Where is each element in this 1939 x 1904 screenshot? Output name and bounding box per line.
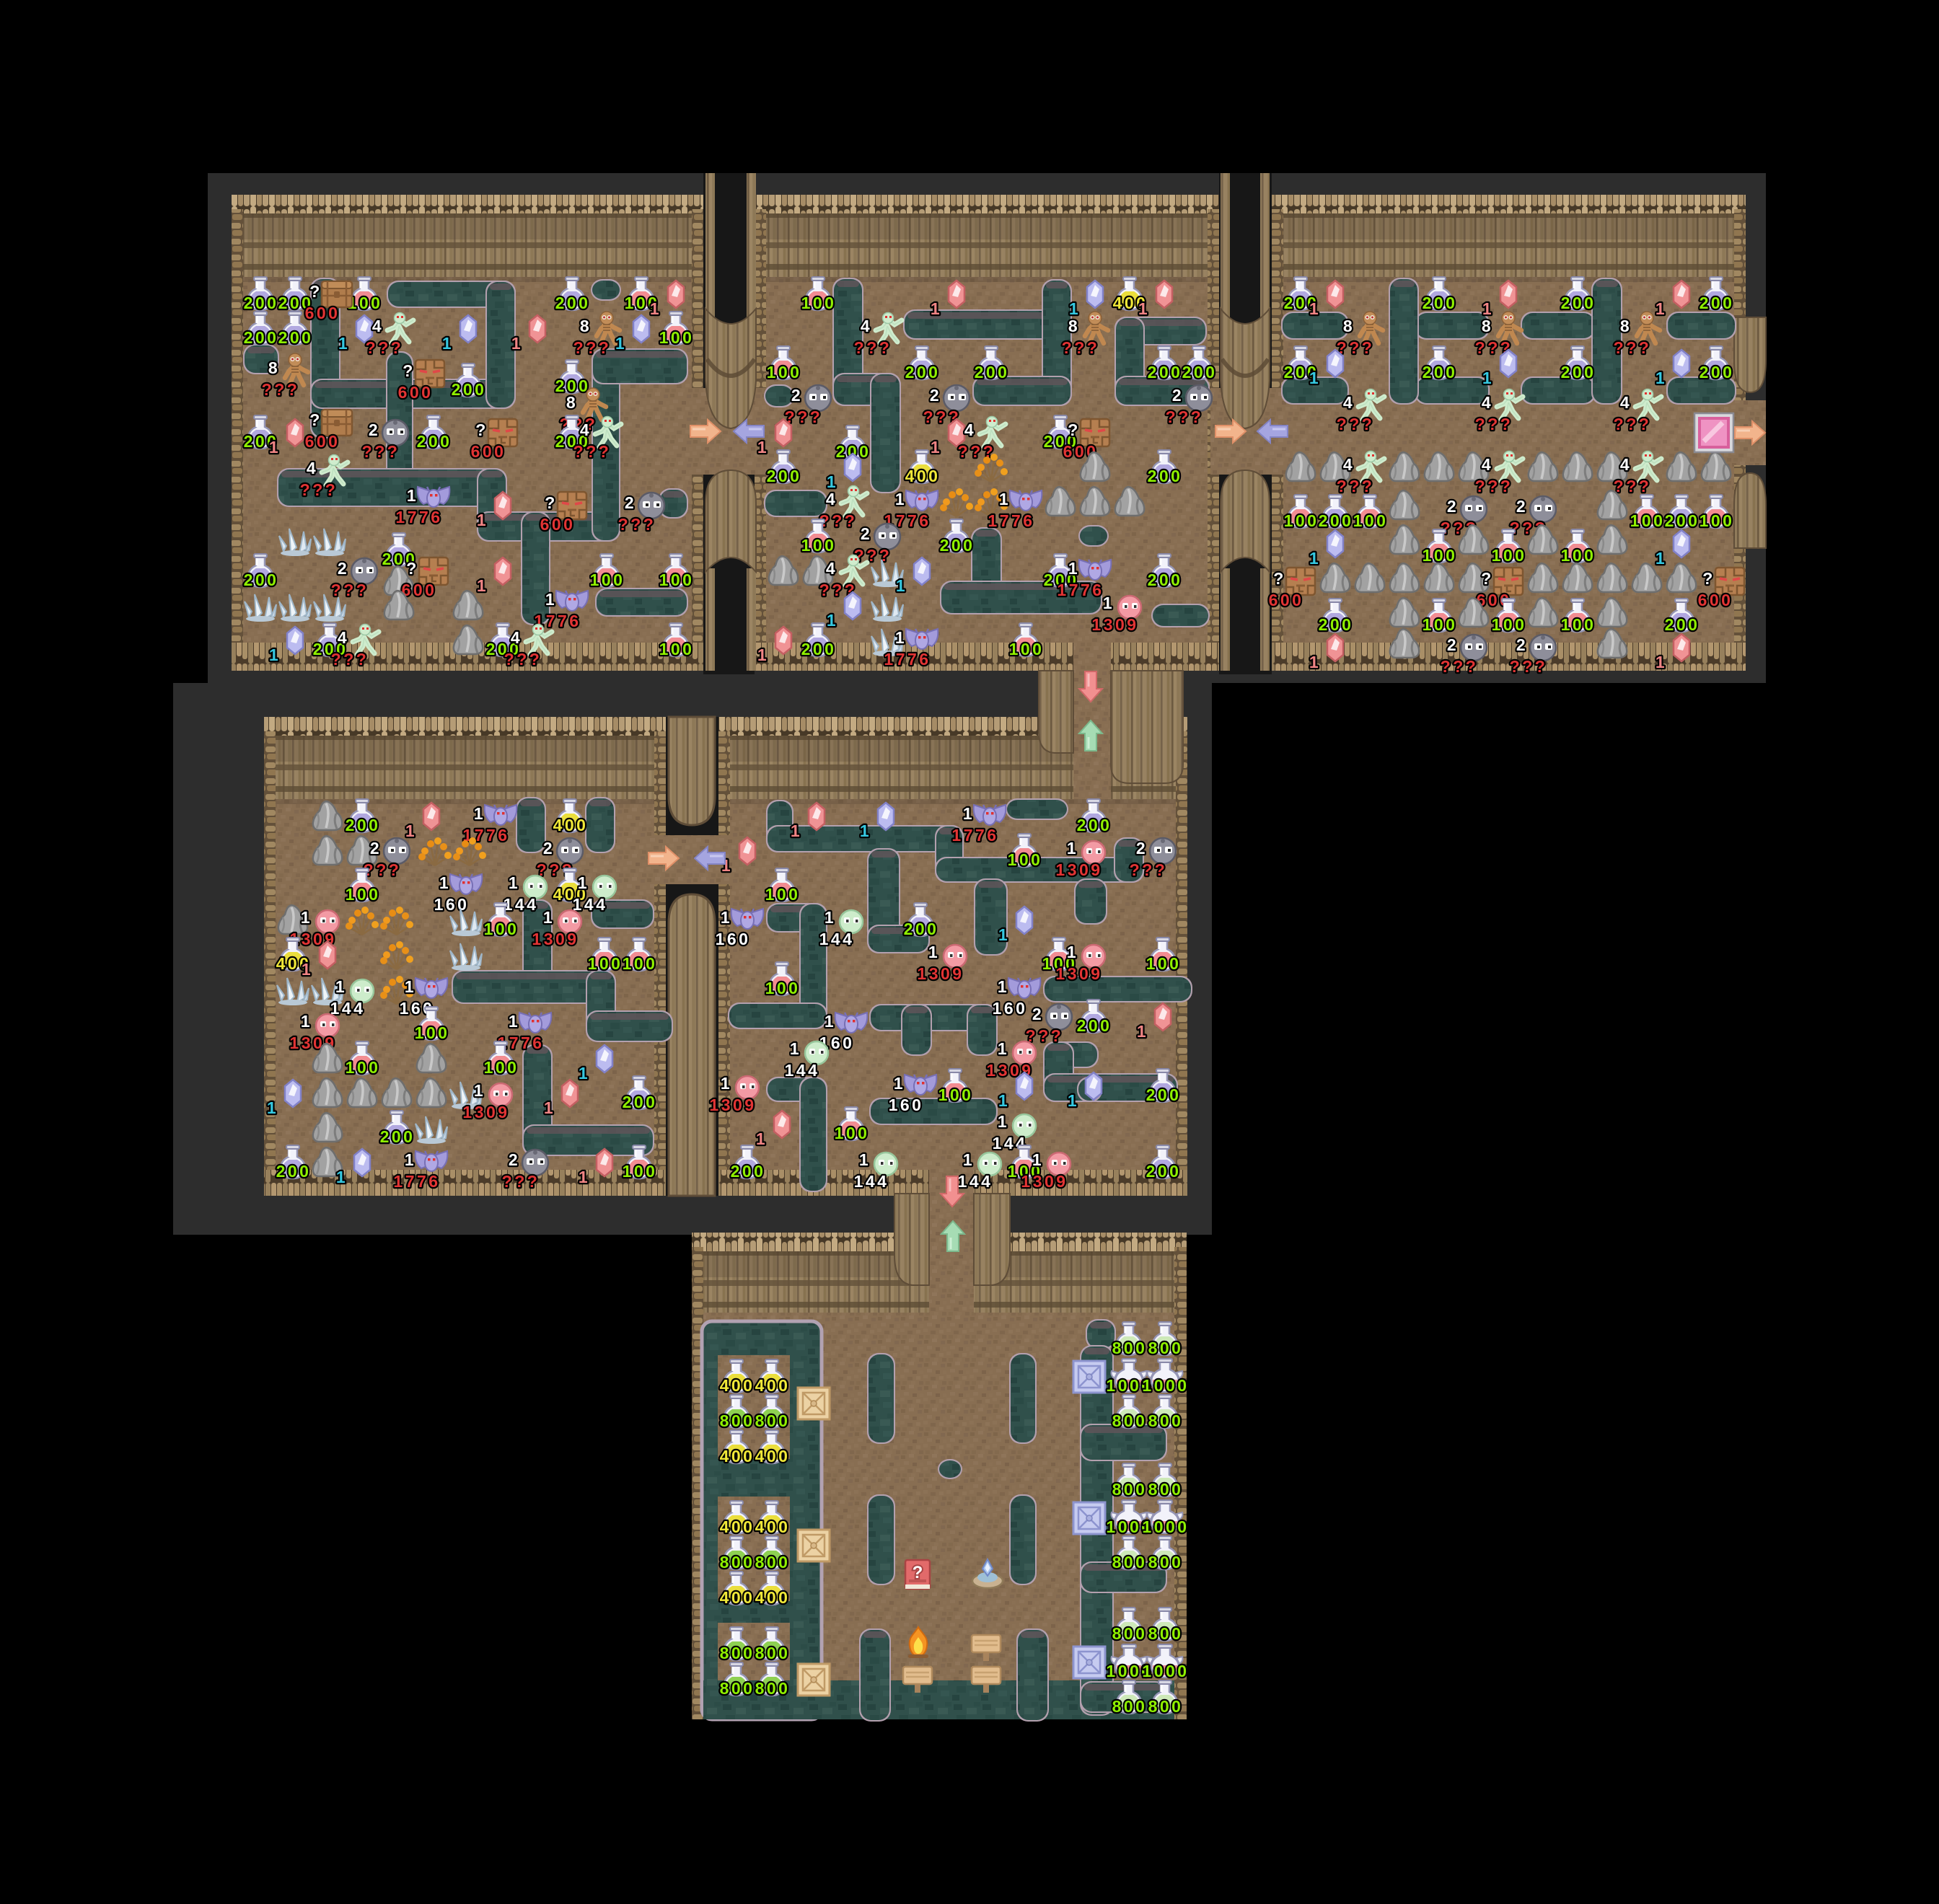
svg-text:100: 100 [588, 954, 623, 973]
svg-text:1: 1 [860, 821, 871, 840]
svg-text:4: 4 [580, 420, 592, 439]
svg-text:200: 200 [1665, 511, 1700, 530]
svg-text:100: 100 [659, 328, 695, 347]
svg-text:200: 200 [1561, 363, 1596, 382]
svg-text:200: 200 [905, 363, 941, 382]
svg-text:1: 1 [439, 873, 451, 892]
svg-text:1: 1 [931, 438, 942, 457]
svg-text:???: ??? [1337, 338, 1375, 357]
svg-text:200: 200 [1423, 294, 1458, 312]
svg-text:???: ??? [1166, 407, 1204, 426]
svg-text:4: 4 [307, 459, 318, 477]
svg-text:???: ??? [1475, 477, 1513, 495]
svg-text:1: 1 [721, 908, 732, 927]
svg-text:???: ??? [1441, 657, 1479, 676]
svg-text:1: 1 [1067, 943, 1078, 961]
svg-text:???: ??? [1614, 338, 1652, 357]
svg-text:200: 200 [1148, 570, 1183, 589]
svg-text:800: 800 [720, 1679, 755, 1698]
svg-text:2: 2 [509, 1150, 520, 1169]
svg-text:4: 4 [372, 317, 384, 335]
svg-text:600: 600 [305, 304, 340, 322]
svg-text:100: 100 [415, 1023, 450, 1042]
svg-text:1776: 1776 [884, 650, 931, 669]
svg-text:600: 600 [540, 515, 576, 534]
svg-text:800: 800 [1148, 1411, 1184, 1430]
svg-text:1776: 1776 [988, 511, 1034, 530]
svg-text:100: 100 [1284, 511, 1319, 530]
svg-text:?: ? [309, 282, 322, 301]
svg-text:100: 100 [590, 570, 625, 589]
svg-text:1: 1 [931, 299, 942, 318]
svg-text:800: 800 [1148, 1553, 1184, 1572]
svg-text:4: 4 [1482, 393, 1493, 412]
svg-text:1: 1 [442, 334, 454, 353]
svg-text:???: ??? [785, 407, 823, 426]
svg-text:1309: 1309 [1055, 860, 1102, 879]
svg-text:1: 1 [545, 590, 557, 609]
svg-text:???: ??? [573, 338, 612, 357]
svg-text:???: ??? [1614, 415, 1652, 433]
svg-text:200: 200 [1319, 511, 1354, 530]
svg-text:200: 200 [1148, 467, 1183, 485]
svg-text:1: 1 [1656, 653, 1667, 671]
svg-text:???: ??? [262, 380, 300, 399]
svg-text:2: 2 [370, 839, 382, 858]
svg-text:2: 2 [543, 839, 555, 858]
svg-text:8: 8 [580, 317, 592, 335]
svg-text:???: ??? [300, 480, 338, 499]
svg-text:400: 400 [720, 1447, 755, 1466]
svg-text:1776: 1776 [393, 1172, 440, 1191]
svg-text:1: 1 [1067, 839, 1078, 858]
svg-text:1: 1 [757, 438, 769, 457]
svg-text:?: ? [1068, 420, 1081, 439]
svg-text:2: 2 [861, 524, 872, 543]
svg-text:200: 200 [244, 570, 279, 589]
svg-text:1: 1 [721, 1074, 732, 1093]
svg-text:800: 800 [1148, 1480, 1184, 1499]
svg-text:1: 1 [579, 1064, 590, 1083]
svg-text:1309: 1309 [917, 964, 964, 983]
svg-text:1: 1 [1032, 1150, 1044, 1169]
svg-text:1: 1 [1656, 549, 1667, 568]
svg-text:800: 800 [1148, 1339, 1184, 1357]
svg-text:1: 1 [650, 299, 661, 318]
svg-text:???: ??? [504, 650, 542, 669]
svg-text:1309: 1309 [462, 1103, 509, 1121]
svg-text:1: 1 [269, 645, 281, 664]
svg-text:800: 800 [755, 1644, 791, 1662]
svg-text:200: 200 [346, 816, 381, 834]
svg-text:200: 200 [1319, 615, 1354, 634]
svg-text:1: 1 [859, 1150, 871, 1169]
svg-text:100: 100 [1423, 546, 1458, 565]
svg-text:1309: 1309 [709, 1096, 756, 1114]
svg-text:???: ??? [366, 338, 404, 357]
svg-text:1: 1 [405, 1150, 416, 1169]
svg-text:8: 8 [1343, 317, 1355, 335]
svg-text:1000: 1000 [1142, 1376, 1189, 1395]
svg-text:144: 144 [819, 930, 855, 948]
svg-text:???: ??? [854, 546, 892, 565]
svg-text:2: 2 [791, 386, 803, 405]
svg-text:144: 144 [330, 999, 366, 1018]
svg-text:1: 1 [791, 821, 802, 840]
svg-text:1: 1 [1482, 369, 1494, 387]
svg-text:1: 1 [1482, 299, 1494, 318]
svg-text:200: 200 [1077, 1016, 1112, 1035]
svg-text:?: ? [1273, 569, 1286, 588]
svg-text:8: 8 [1068, 317, 1080, 335]
svg-text:4: 4 [1343, 455, 1355, 474]
svg-text:2: 2 [1136, 839, 1148, 858]
svg-text:100: 100 [623, 954, 658, 973]
svg-text:800: 800 [1112, 1480, 1148, 1499]
svg-text:1: 1 [615, 334, 627, 353]
svg-text:4: 4 [1620, 393, 1632, 412]
svg-text:1: 1 [756, 1129, 768, 1148]
svg-text:200: 200 [1182, 363, 1218, 382]
svg-text:100: 100 [1561, 615, 1596, 634]
svg-text:1: 1 [827, 472, 838, 491]
svg-text:600: 600 [305, 432, 340, 451]
svg-text:200: 200 [1665, 615, 1700, 634]
svg-text:1309: 1309 [1021, 1172, 1068, 1191]
svg-text:???: ??? [1062, 338, 1100, 357]
svg-text:1: 1 [1068, 559, 1080, 578]
svg-text:200: 200 [380, 1127, 415, 1146]
svg-text:4: 4 [1343, 393, 1355, 412]
svg-text:1: 1 [474, 1081, 485, 1100]
svg-text:1: 1 [895, 490, 907, 508]
svg-text:1: 1 [998, 925, 1010, 944]
svg-text:2: 2 [1516, 497, 1528, 516]
svg-text:100: 100 [484, 920, 519, 938]
svg-text:1: 1 [301, 908, 312, 927]
svg-text:2: 2 [1172, 386, 1184, 405]
svg-text:1: 1 [578, 873, 589, 892]
svg-text:???: ??? [618, 515, 656, 534]
svg-text:4: 4 [511, 628, 522, 647]
svg-text:200: 200 [731, 1162, 766, 1181]
svg-text:100: 100 [1492, 546, 1527, 565]
svg-text:8: 8 [1620, 317, 1632, 335]
svg-text:200: 200 [767, 467, 802, 485]
svg-text:?: ? [309, 410, 322, 429]
svg-text:800: 800 [1112, 1553, 1148, 1572]
svg-text:100: 100 [835, 1124, 870, 1142]
svg-text:1: 1 [896, 576, 907, 595]
svg-text:100: 100 [765, 979, 801, 997]
svg-text:8: 8 [268, 358, 280, 377]
svg-text:1: 1 [1309, 549, 1321, 568]
svg-text:1: 1 [1103, 594, 1114, 612]
svg-text:800: 800 [1148, 1624, 1184, 1643]
svg-text:1: 1 [1309, 653, 1321, 671]
svg-text:1776: 1776 [395, 508, 442, 526]
svg-text:1: 1 [998, 977, 1009, 996]
svg-text:???: ??? [1026, 1026, 1064, 1045]
svg-text:1309: 1309 [532, 930, 579, 948]
svg-text:1: 1 [827, 611, 838, 630]
svg-text:100: 100 [1700, 511, 1735, 530]
svg-text:4: 4 [964, 420, 976, 439]
svg-text:160: 160 [889, 1096, 924, 1114]
svg-text:600: 600 [398, 383, 434, 402]
svg-text:1: 1 [999, 490, 1011, 508]
svg-text:200: 200 [801, 640, 837, 658]
svg-text:600: 600 [402, 581, 437, 599]
svg-text:200: 200 [555, 294, 591, 312]
svg-text:2: 2 [930, 386, 941, 405]
svg-text:100: 100 [1492, 615, 1527, 634]
svg-text:2: 2 [338, 559, 349, 578]
svg-text:1: 1 [544, 1098, 555, 1117]
svg-text:1: 1 [336, 1168, 348, 1186]
svg-text:???: ??? [331, 581, 369, 599]
svg-text:4: 4 [826, 559, 837, 578]
svg-text:???: ??? [331, 650, 369, 669]
svg-text:1: 1 [1656, 299, 1667, 318]
svg-text:800: 800 [1112, 1411, 1148, 1430]
svg-text:400: 400 [720, 1588, 755, 1607]
svg-text:???: ??? [362, 442, 400, 461]
svg-text:100: 100 [484, 1058, 519, 1077]
svg-text:800: 800 [755, 1411, 791, 1430]
svg-text:200: 200 [1423, 363, 1458, 382]
svg-text:800: 800 [1112, 1697, 1148, 1716]
svg-text:1: 1 [474, 804, 485, 823]
svg-text:200: 200 [417, 432, 452, 451]
svg-text:2: 2 [1447, 497, 1459, 516]
svg-text:600: 600 [471, 442, 506, 461]
svg-text:4: 4 [861, 317, 872, 335]
svg-text:400: 400 [905, 467, 941, 485]
svg-text:200: 200 [940, 536, 975, 555]
svg-text:800: 800 [720, 1411, 755, 1430]
svg-text:100: 100 [1353, 511, 1389, 530]
svg-text:1000: 1000 [1142, 1517, 1189, 1536]
svg-text:800: 800 [720, 1553, 755, 1572]
svg-text:400: 400 [553, 816, 589, 834]
svg-text:100: 100 [1008, 850, 1043, 869]
svg-text:2: 2 [625, 493, 636, 512]
svg-text:100: 100 [659, 570, 695, 589]
svg-text:4: 4 [1620, 455, 1632, 474]
svg-text:?: ? [1481, 569, 1494, 588]
svg-text:1309: 1309 [1091, 615, 1138, 634]
svg-text:100: 100 [938, 1085, 974, 1104]
svg-text:1: 1 [407, 486, 418, 505]
svg-text:1: 1 [757, 645, 769, 664]
svg-text:?: ? [403, 361, 415, 380]
svg-text:100: 100 [767, 363, 802, 382]
svg-text:160: 160 [993, 999, 1028, 1018]
svg-text:1: 1 [790, 1039, 801, 1058]
svg-text:4: 4 [1482, 455, 1493, 474]
svg-text:1: 1 [1138, 299, 1150, 318]
svg-text:160: 160 [434, 895, 470, 914]
svg-text:200: 200 [623, 1093, 658, 1111]
svg-text:800: 800 [755, 1679, 791, 1698]
svg-text:400: 400 [755, 1588, 791, 1607]
svg-text:200: 200 [278, 328, 314, 347]
svg-text:1: 1 [998, 1112, 1009, 1131]
svg-text:1: 1 [405, 977, 416, 996]
svg-text:???: ??? [1130, 860, 1168, 879]
svg-text:144: 144 [958, 1172, 993, 1191]
svg-text:400: 400 [755, 1517, 791, 1536]
svg-text:1776: 1776 [1057, 581, 1104, 599]
svg-text:100: 100 [1561, 546, 1596, 565]
svg-text:1: 1 [302, 960, 313, 979]
svg-text:1: 1 [509, 873, 520, 892]
svg-text:100: 100 [659, 640, 695, 658]
svg-text:100: 100 [1630, 511, 1666, 530]
svg-text:4: 4 [338, 628, 349, 647]
svg-text:?: ? [475, 420, 488, 439]
svg-text:?: ? [1702, 569, 1715, 588]
svg-text:1: 1 [1656, 369, 1667, 387]
svg-text:200: 200 [1146, 1085, 1182, 1104]
svg-text:???: ??? [573, 442, 612, 461]
svg-text:800: 800 [1112, 1339, 1148, 1357]
svg-text:1: 1 [825, 908, 836, 927]
svg-text:144: 144 [504, 895, 539, 914]
svg-text:1: 1 [963, 804, 975, 823]
svg-text:1: 1 [998, 1039, 1009, 1058]
svg-text:800: 800 [1112, 1624, 1148, 1643]
svg-text:???: ??? [1614, 477, 1652, 495]
svg-text:???: ??? [502, 1172, 540, 1191]
svg-text:200: 200 [1700, 294, 1735, 312]
svg-text:?: ? [545, 493, 558, 512]
svg-text:800: 800 [755, 1553, 791, 1572]
svg-text:1: 1 [335, 977, 347, 996]
svg-text:2: 2 [1447, 635, 1459, 654]
svg-text:1: 1 [895, 628, 907, 647]
svg-text:???: ??? [1510, 657, 1548, 676]
svg-text:1: 1 [1068, 1091, 1079, 1110]
svg-text:2: 2 [1516, 635, 1528, 654]
svg-text:???: ??? [1337, 477, 1375, 495]
svg-text:2: 2 [1032, 1005, 1044, 1023]
svg-text:?: ? [406, 559, 419, 578]
svg-text:400: 400 [755, 1376, 791, 1395]
svg-text:???: ??? [958, 442, 996, 461]
svg-text:1776: 1776 [951, 826, 998, 845]
svg-text:100: 100 [623, 1162, 658, 1181]
svg-text:1: 1 [1309, 369, 1321, 387]
svg-text:???: ??? [1337, 415, 1375, 433]
svg-text:4: 4 [826, 490, 837, 508]
svg-text:200: 200 [1077, 816, 1112, 834]
svg-text:1: 1 [301, 1012, 312, 1031]
svg-text:1: 1 [509, 1012, 520, 1031]
svg-text:1: 1 [405, 821, 417, 840]
svg-text:1: 1 [1137, 1022, 1148, 1041]
svg-text:1: 1 [1069, 299, 1081, 318]
svg-text:1: 1 [894, 1074, 905, 1093]
svg-text:200: 200 [244, 328, 279, 347]
svg-text:100: 100 [1009, 640, 1045, 658]
svg-text:100: 100 [346, 885, 381, 904]
svg-text:1309: 1309 [1055, 964, 1102, 983]
svg-text:200: 200 [452, 380, 487, 399]
svg-text:100: 100 [1146, 954, 1182, 973]
svg-text:100: 100 [346, 1058, 381, 1077]
svg-text:1: 1 [477, 511, 488, 529]
svg-text:200: 200 [904, 920, 939, 938]
svg-text:200: 200 [1146, 1162, 1182, 1181]
svg-text:1: 1 [579, 1168, 590, 1186]
svg-text:???: ??? [1475, 415, 1513, 433]
svg-text:1: 1 [928, 943, 940, 961]
svg-text:144: 144 [785, 1061, 820, 1080]
svg-text:100: 100 [765, 885, 801, 904]
svg-text:1: 1 [269, 438, 281, 457]
svg-text:100: 100 [1423, 615, 1458, 634]
svg-text:1: 1 [267, 1098, 278, 1117]
svg-text:160: 160 [716, 930, 751, 948]
svg-text:1: 1 [477, 576, 488, 595]
svg-text:100: 100 [801, 536, 837, 555]
svg-text:200: 200 [975, 363, 1010, 382]
svg-text:1: 1 [825, 1012, 836, 1031]
svg-text:2: 2 [369, 420, 380, 439]
svg-text:200: 200 [1148, 363, 1183, 382]
svg-text:200: 200 [1700, 363, 1735, 382]
svg-text:100: 100 [801, 294, 837, 312]
svg-text:1: 1 [998, 1091, 1010, 1110]
svg-text:200: 200 [244, 294, 279, 312]
svg-text:1: 1 [543, 908, 555, 927]
svg-text:800: 800 [720, 1644, 755, 1662]
svg-text:1: 1 [963, 1150, 975, 1169]
svg-text:200: 200 [276, 1162, 312, 1181]
svg-text:600: 600 [1698, 591, 1733, 609]
svg-text:???: ??? [854, 338, 892, 357]
svg-text:1000: 1000 [1142, 1662, 1189, 1680]
svg-text:200: 200 [1561, 294, 1596, 312]
svg-text:1: 1 [511, 334, 523, 353]
svg-text:1: 1 [338, 334, 350, 353]
svg-text:400: 400 [755, 1447, 791, 1466]
svg-text:8: 8 [1482, 317, 1493, 335]
svg-text:8: 8 [566, 393, 578, 412]
svg-text:800: 800 [1148, 1697, 1184, 1716]
svg-text:144: 144 [573, 895, 608, 914]
svg-text:600: 600 [1269, 591, 1304, 609]
svg-text:144: 144 [854, 1172, 889, 1191]
svg-text:400: 400 [720, 1376, 755, 1395]
svg-text:400: 400 [720, 1517, 755, 1536]
svg-text:1: 1 [1309, 299, 1321, 318]
